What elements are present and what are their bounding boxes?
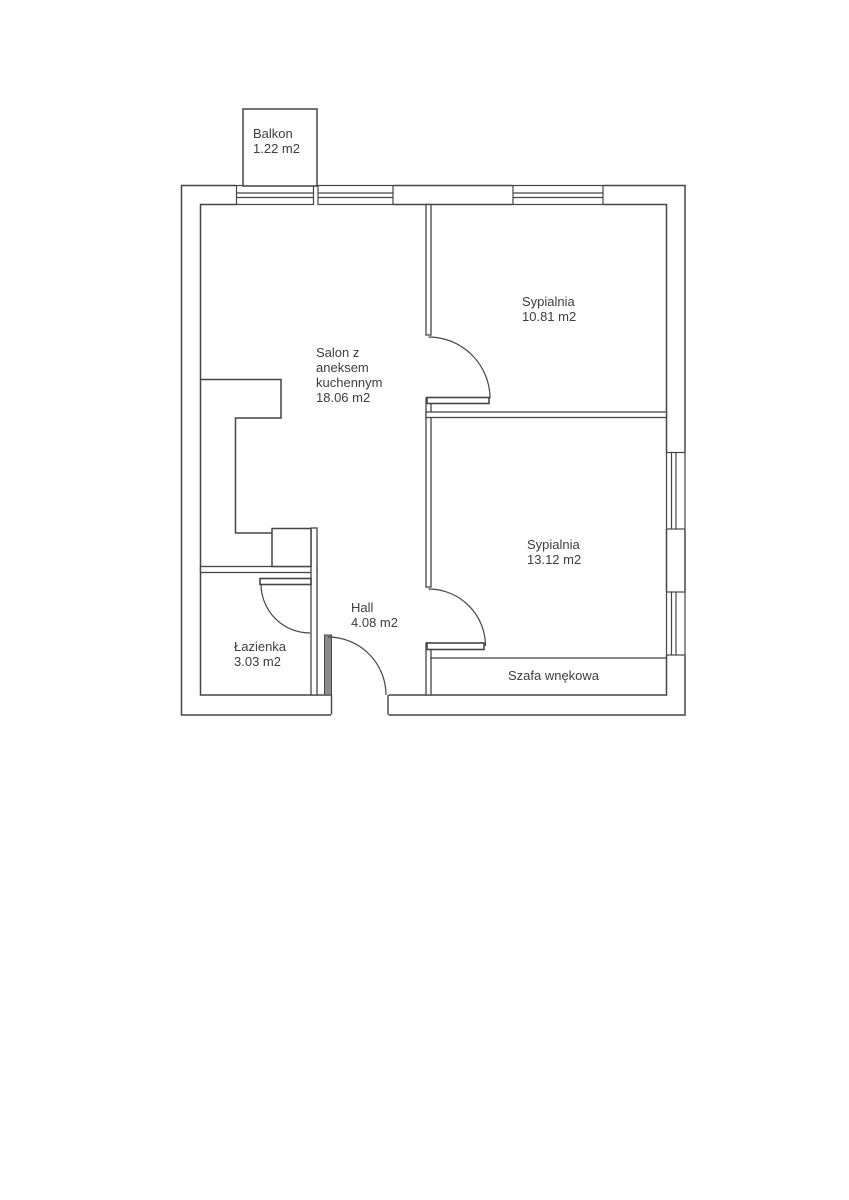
outer-wall-outline bbox=[182, 186, 686, 716]
balcony-label: Balkon 1.22 m2 bbox=[253, 126, 300, 156]
floor-plan-drawing bbox=[0, 0, 849, 1200]
bedroom2-door-swing bbox=[429, 589, 486, 646]
balcony-area: 1.22 m2 bbox=[253, 141, 300, 156]
bathroom-area: 3.03 m2 bbox=[234, 654, 286, 669]
bedroom2-label: Sypialnia 13.12 m2 bbox=[527, 537, 581, 567]
inner-wall-outline bbox=[201, 205, 667, 696]
wall-bathroom-top bbox=[201, 567, 318, 573]
bathroom-label: Łazienka 3.03 m2 bbox=[234, 639, 286, 669]
wall-bathroom-right bbox=[311, 528, 317, 695]
wardrobe-label: Szafa wnękowa bbox=[440, 668, 667, 683]
wall-hall-bedroom2 bbox=[426, 643, 431, 695]
bedroom2-name: Sypialnia bbox=[527, 537, 581, 552]
entrance-door-leaf bbox=[325, 635, 332, 695]
livingroom-name-line1: Salon z bbox=[316, 345, 382, 360]
bedroom2-area: 13.12 m2 bbox=[527, 552, 581, 567]
outer-walls bbox=[182, 186, 686, 716]
bathroom-door-swing bbox=[261, 584, 310, 633]
wall-salon-bedroom2 bbox=[426, 398, 431, 587]
livingroom-name-line2: aneksem bbox=[316, 360, 382, 375]
bedroom2-door-leaf bbox=[427, 643, 484, 650]
bedroom1-door-swing bbox=[429, 337, 491, 399]
bedroom1-door-leaf bbox=[427, 398, 489, 404]
hall-label: Hall 4.08 m2 bbox=[351, 600, 398, 630]
floor-plan-page: Balkon 1.22 m2 Salon z aneksem kuchennym… bbox=[0, 0, 849, 1200]
kitchen-annex-walls bbox=[201, 380, 312, 567]
bedroom1-label: Sypialnia 10.81 m2 bbox=[522, 294, 576, 324]
kitchen-duct-box bbox=[272, 529, 311, 567]
wardrobe-name: Szafa wnękowa bbox=[440, 668, 667, 683]
bathroom-name: Łazienka bbox=[234, 639, 286, 654]
hall-area: 4.08 m2 bbox=[351, 615, 398, 630]
bedroom1-area: 10.81 m2 bbox=[522, 309, 576, 324]
balcony-name: Balkon bbox=[253, 126, 300, 141]
livingroom-label: Salon z aneksem kuchennym 18.06 m2 bbox=[316, 345, 382, 405]
livingroom-area: 18.06 m2 bbox=[316, 390, 382, 405]
interior-walls bbox=[201, 205, 667, 696]
wall-bedroom1-bedroom2 bbox=[426, 412, 667, 418]
wall-openings bbox=[236, 184, 688, 719]
hall-name: Hall bbox=[351, 600, 398, 615]
wall-salon-bedroom1 bbox=[426, 205, 431, 336]
bedroom1-name: Sypialnia bbox=[522, 294, 576, 309]
livingroom-name-line3: kuchennym bbox=[316, 375, 382, 390]
entrance-door-swing bbox=[328, 637, 386, 695]
bathroom-door-leaf bbox=[260, 579, 311, 585]
